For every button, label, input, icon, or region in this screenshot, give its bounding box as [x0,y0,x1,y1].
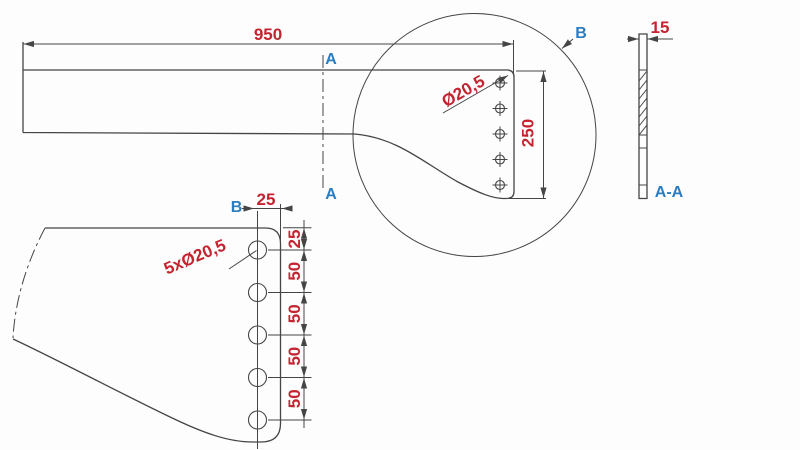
holes-callout-label: 5xØ20,5 [161,235,228,278]
pitch-dimension-label: 50 [285,262,304,281]
drawing-sheet: 950 A A B [0,0,800,450]
detail-view: 25 50 50 50 50 25 B 5xØ20,5 [13,190,312,449]
hole-pattern [493,76,508,193]
detail-lower-edge-curve [13,339,253,442]
hole-diameter-label: Ø20,5 [438,71,488,111]
hole [493,101,508,116]
detail-circle-outline [353,14,596,257]
height-dimension-label: 250 [519,119,538,147]
pitch-dimension-label: 25 [285,230,304,249]
detail-circle-leader [562,39,573,49]
hole [493,178,508,193]
edge-offset-label: 25 [257,190,276,209]
front-view: 950 A A [23,25,514,203]
section-name-label: A-A [655,184,684,201]
pitch-dimension-label: 50 [285,304,304,323]
detail-circle-label: B [575,25,587,42]
thickness-dimension-label: 15 [651,18,670,37]
section-label-bottom: A [325,186,337,203]
pitch-dimension-label: 50 [285,347,304,366]
front-part-outline [23,42,514,199]
side-view-division-lines [639,70,647,185]
length-dimension-label: 950 [254,25,282,44]
detail-break-line [13,228,45,338]
side-view: 15 A-A [627,18,684,201]
section-label-top: A [325,51,337,68]
holes-callout-leader [229,251,257,270]
technical-drawing: 950 A A B [0,0,800,450]
detail-view-label: B [231,199,243,216]
detail-circle: B [353,14,596,257]
hole [493,127,508,142]
section-hatching [639,71,647,135]
pitch-dimension-label: 50 [285,389,304,408]
hole [493,152,508,167]
